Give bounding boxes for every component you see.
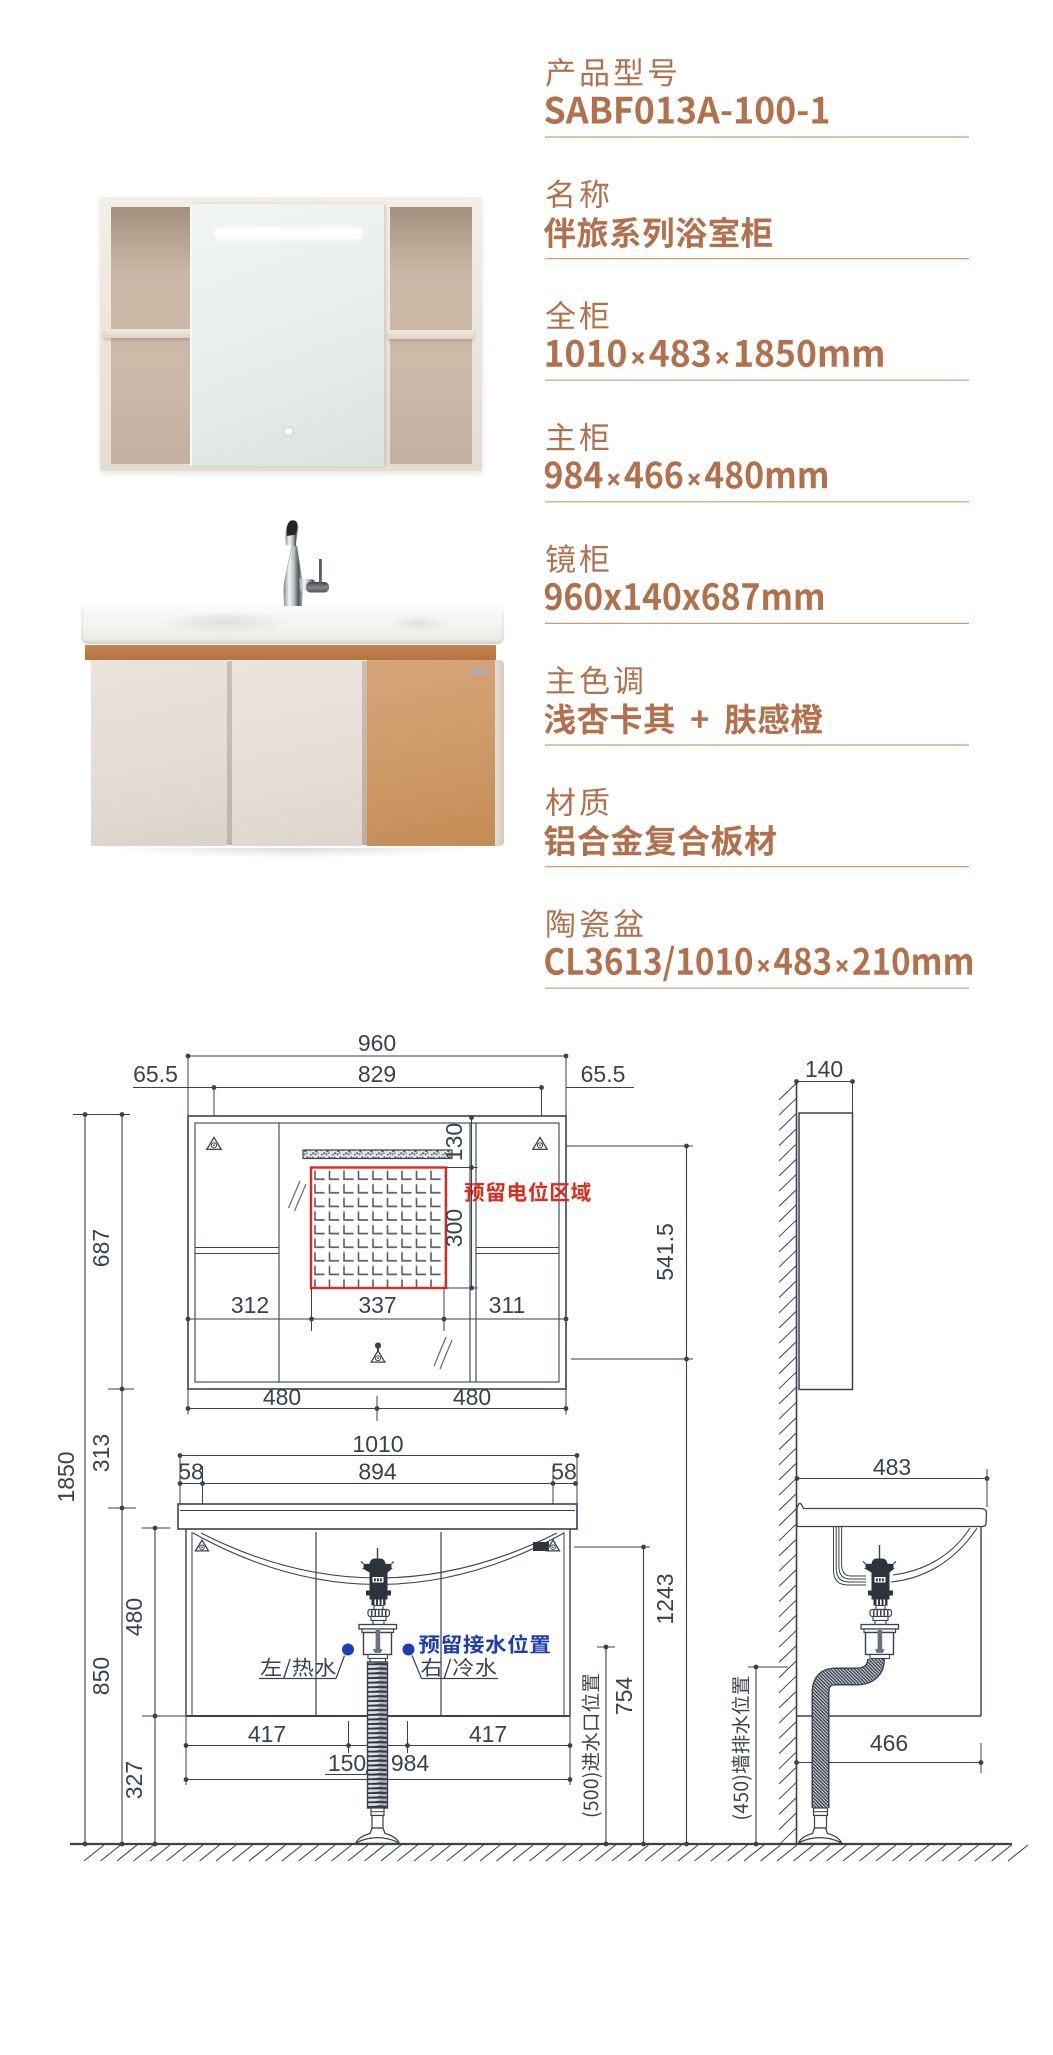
svg-text:58: 58 <box>551 1459 577 1485</box>
svg-text:312: 312 <box>231 1292 269 1318</box>
svg-text:150: 150 <box>328 1750 366 1776</box>
svg-text:850: 850 <box>88 1657 114 1695</box>
svg-text:541.5: 541.5 <box>652 1223 678 1281</box>
svg-text:960: 960 <box>358 1030 396 1056</box>
svg-text:984: 984 <box>391 1750 430 1776</box>
svg-text:313: 313 <box>88 1434 114 1472</box>
svg-text:140: 140 <box>805 1056 843 1082</box>
svg-text:417: 417 <box>248 1721 286 1747</box>
svg-text:337: 337 <box>358 1292 396 1318</box>
svg-text:754: 754 <box>611 1677 637 1716</box>
svg-text:829: 829 <box>358 1061 396 1087</box>
svg-text:1243: 1243 <box>652 1573 678 1624</box>
svg-text:65.5: 65.5 <box>581 1061 626 1087</box>
svg-text:311: 311 <box>489 1292 526 1318</box>
svg-text:417: 417 <box>469 1721 507 1747</box>
svg-text:483: 483 <box>873 1454 911 1480</box>
svg-text:58: 58 <box>178 1459 204 1485</box>
svg-text:480: 480 <box>453 1384 491 1410</box>
svg-text:1850: 1850 <box>53 1451 79 1502</box>
svg-text:687: 687 <box>88 1229 114 1267</box>
svg-text:466: 466 <box>870 1730 908 1756</box>
svg-text:130: 130 <box>441 1123 467 1161</box>
svg-text:65.5: 65.5 <box>133 1061 178 1087</box>
svg-text:300: 300 <box>441 1209 467 1247</box>
svg-text:480: 480 <box>263 1384 301 1410</box>
svg-text:327: 327 <box>121 1761 147 1799</box>
svg-text:1010: 1010 <box>352 1431 403 1457</box>
svg-text:894: 894 <box>358 1459 397 1485</box>
svg-text:480: 480 <box>121 1598 147 1636</box>
